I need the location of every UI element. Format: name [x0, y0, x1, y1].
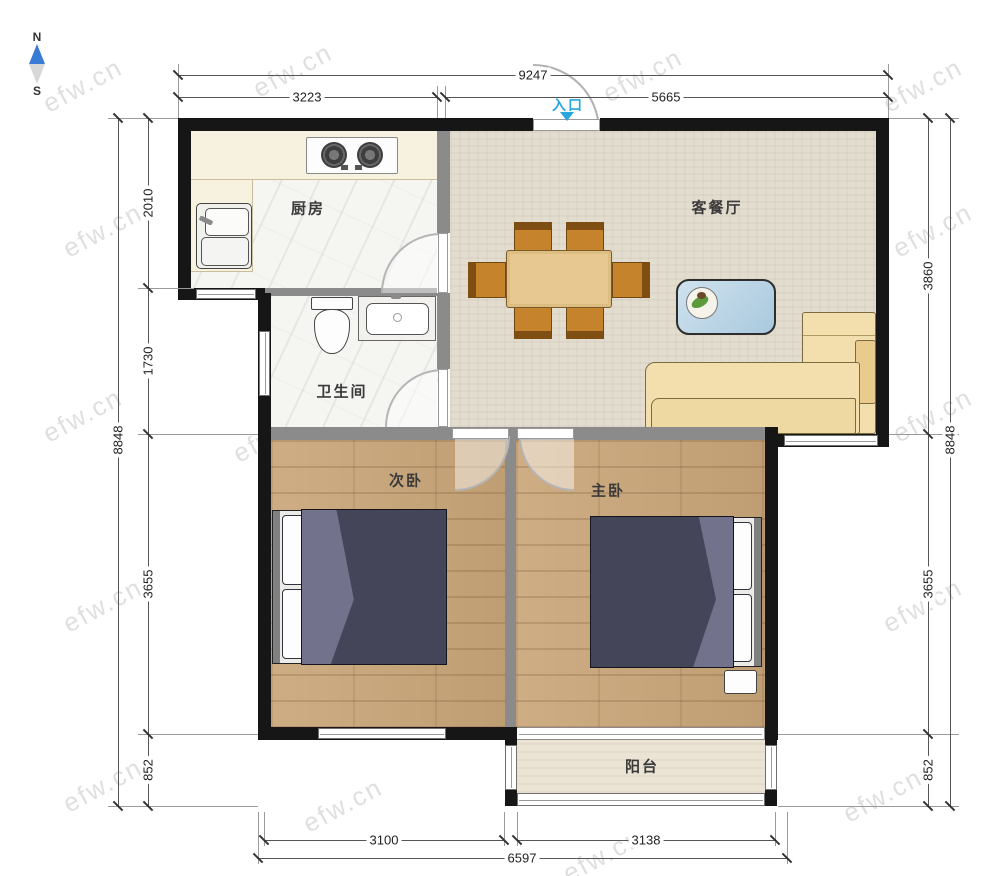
watermark-text: efw.cn — [58, 197, 148, 265]
kitchen-window — [196, 289, 256, 299]
second-bedroom-door-leaf — [452, 428, 509, 439]
bed-headboard — [273, 511, 280, 663]
watermark-text: efw.cn — [878, 52, 968, 120]
extension-line — [178, 64, 179, 118]
extension-line — [108, 806, 258, 807]
bed-duvet — [301, 509, 447, 665]
wall-post — [765, 790, 777, 806]
dimension-right-seg1: 3860 — [921, 259, 936, 294]
wall-post — [765, 727, 777, 745]
bathroom-door-leaf — [438, 369, 448, 427]
stove-knob-icon — [355, 165, 362, 170]
entrance-arrow-icon — [560, 112, 574, 121]
dimension-line-left-segments — [148, 118, 149, 806]
wall — [600, 118, 888, 131]
dimension-left-seg4: 852 — [141, 756, 156, 784]
dining-chair — [566, 222, 604, 252]
sliding-door-track — [519, 734, 762, 735]
wall-post — [505, 727, 517, 745]
wall — [765, 427, 778, 740]
dimension-left-seg2: 1730 — [141, 344, 156, 379]
extension-line — [445, 86, 446, 118]
wall — [876, 118, 889, 447]
living-room-window — [784, 435, 878, 446]
watermark-text: efw.cn — [888, 382, 978, 450]
second-bedroom-window — [318, 728, 446, 739]
bed-duvet — [590, 516, 734, 668]
compass: N S — [22, 30, 52, 96]
extension-line — [778, 734, 959, 735]
duvet-fold — [591, 517, 733, 667]
dimension-right-seg2: 3655 — [921, 567, 936, 602]
floor-plan: efw.cn efw.cn efw.cn efw.cn efw.cn efw.c… — [0, 0, 1000, 876]
bed-headboard — [754, 518, 761, 666]
second-bedroom-bed — [272, 510, 444, 664]
sink-basin — [201, 237, 249, 266]
wall — [437, 293, 450, 369]
balcony-window — [505, 745, 517, 790]
dimension-top-seg1: 3223 — [290, 90, 325, 105]
master-bedroom-bed — [591, 517, 762, 667]
extension-line — [138, 734, 258, 735]
bathroom-window — [259, 331, 270, 396]
living-dining-label: 客餐厅 — [691, 197, 742, 218]
compass-needle-south — [29, 64, 45, 84]
dimension-bottom-total: 6597 — [505, 851, 540, 866]
compass-north-label: N — [22, 30, 52, 44]
dimension-left-seg3: 3655 — [141, 567, 156, 602]
plant-icon — [697, 292, 706, 299]
extension-line — [437, 86, 438, 118]
kitchen-door-leaf — [438, 233, 448, 293]
duvet-fold — [302, 510, 446, 664]
watermark-text: efw.cn — [58, 572, 148, 640]
stove-knob-icon — [341, 165, 348, 170]
master-bedroom-label: 主卧 — [591, 480, 625, 501]
balcony-label: 阳台 — [625, 756, 659, 777]
dimension-line-right-segments — [928, 118, 929, 806]
extension-line — [138, 434, 258, 435]
dimension-right-total: 8848 — [943, 423, 958, 458]
kitchen-sink — [196, 203, 252, 269]
wall — [258, 427, 766, 440]
dimension-left-seg1: 2010 — [141, 186, 156, 221]
dining-chair — [514, 307, 552, 339]
dining-chair — [566, 307, 604, 339]
watermark-text: efw.cn — [838, 762, 928, 830]
dimension-right-seg3: 852 — [921, 756, 936, 784]
sofa-seam — [803, 335, 875, 336]
wall — [258, 427, 271, 740]
balcony-sliding-door — [516, 727, 765, 740]
dining-chair — [468, 262, 506, 298]
dimension-left-total: 8848 — [111, 423, 126, 458]
dimension-top-total: 9247 — [516, 68, 551, 83]
wall-post — [505, 790, 517, 806]
dimension-line-left-total — [118, 118, 119, 806]
compass-south-label: S — [22, 84, 52, 98]
bathroom-vanity — [358, 296, 436, 341]
watermark-text: efw.cn — [558, 822, 648, 876]
dining-table — [506, 250, 612, 308]
compass-needle-north — [29, 44, 45, 64]
watermark-text: efw.cn — [888, 197, 978, 265]
wall — [437, 131, 450, 233]
balcony-window — [765, 745, 777, 790]
kitchen-label: 厨房 — [291, 198, 325, 219]
wall — [178, 118, 533, 131]
coffee-table — [676, 279, 776, 335]
nightstand — [724, 670, 757, 694]
bathroom-label: 卫生间 — [316, 381, 367, 402]
dining-chair — [514, 222, 552, 252]
dining-chair — [612, 262, 650, 298]
wall — [178, 118, 191, 300]
balcony-window — [517, 793, 765, 806]
second-bedroom-label: 次卧 — [389, 470, 423, 491]
wall — [505, 440, 516, 727]
watermark-text: efw.cn — [298, 772, 388, 840]
master-bedroom-door-leaf — [517, 428, 574, 439]
dimension-line-right-total — [950, 118, 951, 806]
dimension-bottom-seg1: 3100 — [367, 833, 402, 848]
dimension-top-seg2: 5665 — [649, 90, 684, 105]
extension-line — [778, 806, 959, 807]
extension-line — [888, 64, 889, 118]
stove — [306, 137, 398, 174]
dimension-bottom-seg2: 3138 — [629, 833, 664, 848]
watermark-text: efw.cn — [58, 752, 148, 820]
sink-drain-icon — [393, 313, 402, 322]
